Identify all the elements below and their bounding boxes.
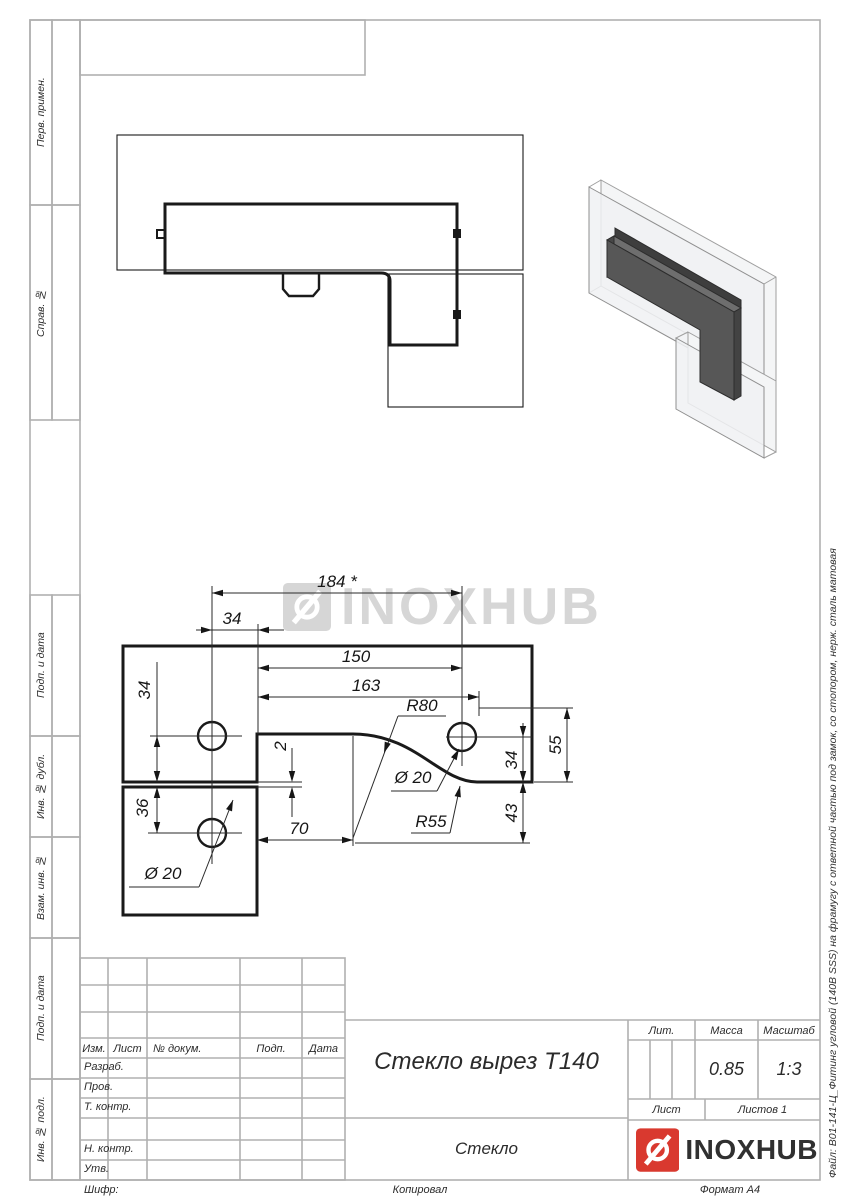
format-label: Формат А4	[670, 1184, 790, 1196]
scale-value: 1:3	[758, 1040, 820, 1099]
fitting-right-tab-lower	[453, 310, 461, 319]
row-utv: Утв.	[84, 1163, 109, 1175]
sidebar-item-perv-primen: Перв. примен.	[30, 20, 52, 205]
drawing-sheet: { "page": { "cipher_label": "Шифр:", "co…	[0, 0, 848, 1200]
mass-label: Масса	[695, 1022, 758, 1040]
scale-label: Масштаб	[758, 1022, 820, 1040]
inoxhub-logo-icon	[636, 1128, 679, 1172]
col-podp: Подп.	[240, 1040, 302, 1058]
dim-163: 163	[352, 676, 381, 695]
dim-34-right: 34	[502, 751, 521, 770]
dimension-lines	[129, 586, 573, 887]
file-name-vertical: Файл: В01-141-Ц_Фитинг угловой (140В SSS…	[827, 548, 839, 1178]
brand-text: INOXHUB	[685, 1134, 818, 1166]
dim-34-top: 34	[223, 609, 242, 628]
dimension-view: 184 * 34 150 163 R80 55 34 43 2 34 36 70…	[123, 572, 573, 915]
iso-view	[589, 180, 776, 458]
dim-55: 55	[546, 735, 565, 754]
dim-dia20-left: Ø 20	[144, 864, 182, 883]
dim-r55: R55	[415, 812, 447, 831]
mass-value: 0.85	[695, 1040, 758, 1099]
dim-36: 36	[133, 798, 152, 817]
dim-dia20-right: Ø 20	[394, 768, 432, 787]
doc-title: Стекло вырез Т140	[345, 1020, 628, 1104]
sheets-label: Листов 1	[705, 1100, 820, 1119]
glass-transom-profile	[123, 646, 532, 782]
fitting-right-tab-upper	[453, 229, 461, 238]
col-list: Лист	[108, 1040, 147, 1058]
dim-2: 2	[271, 741, 290, 752]
lit-label: Лит.	[628, 1022, 695, 1040]
sidebar-item-podp-data-1: Подп. и дата	[30, 595, 52, 736]
row-prov: Пров.	[84, 1081, 113, 1093]
sidebar-item-inv-dubl: Инв. № дубл.	[30, 736, 52, 837]
sidebar-item-sprav-no: Справ. №	[30, 205, 52, 420]
dim-70: 70	[290, 819, 309, 838]
row-razrab: Разраб.	[84, 1061, 124, 1073]
dim-r80: R80	[406, 696, 438, 715]
sidebar-item-inv-podl: Инв. № подл.	[30, 1079, 52, 1180]
col-izm: Изм.	[80, 1040, 108, 1058]
inoxhub-logo: INOXHUB	[636, 1125, 818, 1175]
dim-184: 184 *	[317, 572, 358, 591]
top-view	[117, 135, 523, 407]
col-no-dokum: № докум.	[153, 1043, 201, 1055]
dim-43: 43	[502, 803, 521, 822]
sidebar-item-podp-data-2: Подп. и дата	[30, 938, 52, 1079]
row-t-kontr: Т. контр.	[84, 1101, 131, 1113]
fitting-knob	[283, 273, 319, 296]
sheet-label: Лист	[628, 1100, 705, 1119]
row-n-kontr: Н. контр.	[84, 1143, 134, 1155]
col-data: Дата	[302, 1040, 345, 1058]
dim-150: 150	[342, 647, 371, 666]
sidebar-item-vzam-inv: Взам. инв. №	[30, 837, 52, 938]
dim-34-left: 34	[135, 681, 154, 700]
material-label: Стекло	[345, 1118, 628, 1180]
copied-label: Копировал	[345, 1184, 495, 1196]
cipher-label: Шифр:	[84, 1184, 119, 1196]
